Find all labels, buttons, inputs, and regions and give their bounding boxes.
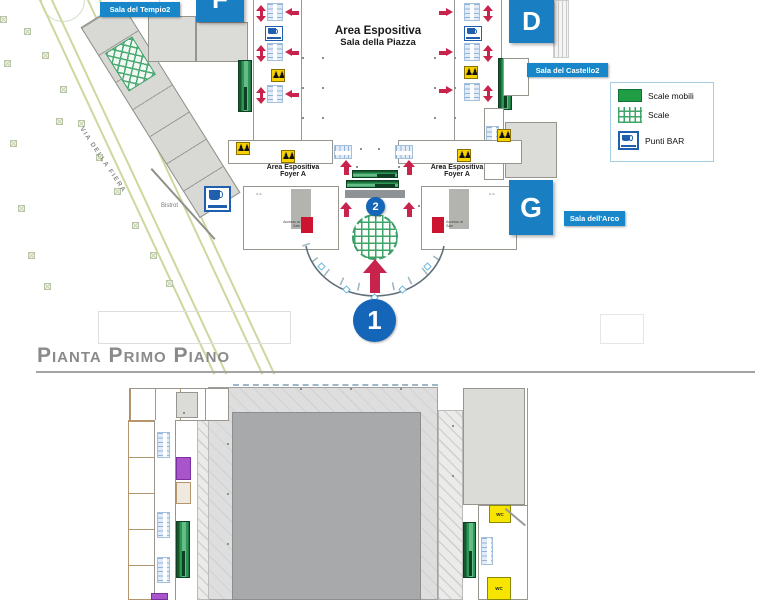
- tree-icon: [56, 118, 63, 125]
- tree-icon: [0, 16, 7, 23]
- bench-gates: [267, 85, 283, 103]
- bench-gates: [464, 83, 480, 101]
- tree-icon: [28, 252, 35, 259]
- arrow-left-icon: [285, 8, 299, 17]
- first-floor-plan: WC WC: [0, 380, 760, 600]
- bar-icon: [464, 26, 482, 41]
- foyer-label-right: Area Espositiva Foyer A: [425, 164, 489, 178]
- piazza-title: Area Espositiva Sala della Piazza: [320, 25, 436, 48]
- tree-icon: [18, 205, 25, 212]
- badge-sala-dellarco: Sala dell'Arco: [564, 211, 625, 226]
- foyer-label-left: Area Espositiva Foyer A: [261, 164, 325, 178]
- bench-gates: [157, 512, 170, 538]
- arrow-up-icon: [403, 160, 415, 175]
- escalator-icon: [463, 522, 476, 578]
- arrow-vertical-icon: [256, 87, 266, 104]
- building-block: [463, 388, 525, 505]
- building-block: [176, 482, 191, 504]
- bench-gates: [157, 557, 170, 583]
- bar-icon: [618, 131, 639, 150]
- arrow-left-icon: [285, 90, 299, 99]
- tree-icon: [10, 140, 17, 147]
- bench-gates: [157, 432, 170, 458]
- legend-label: Scale mobili: [648, 91, 694, 101]
- inner-hall: [232, 412, 421, 600]
- bench-gates: [267, 43, 283, 61]
- arrow-up-icon: [403, 202, 415, 217]
- section-heading: Pianta Primo Piano: [37, 344, 230, 368]
- tree-icon: [166, 280, 173, 287]
- escalator-icon: [352, 170, 398, 178]
- wall: [253, 0, 254, 142]
- arrow-up-icon: [340, 160, 352, 175]
- legend-label: Scale: [648, 110, 669, 120]
- hall-f-letter: F: [212, 0, 228, 15]
- escalator-icon: [238, 60, 252, 112]
- escalator-icon: [346, 180, 399, 188]
- pedestrians-icon: [464, 66, 478, 79]
- building-block: [196, 22, 248, 62]
- hatch-strip: [438, 410, 463, 600]
- escalator-swatch: [618, 89, 642, 102]
- tree-icon: [42, 52, 49, 59]
- arrow-right-icon: [439, 48, 453, 57]
- pedestrians-icon: [457, 149, 471, 162]
- bench-gates: [267, 3, 283, 21]
- arrow-vertical-icon: [256, 5, 266, 22]
- building-block: [176, 392, 198, 418]
- pedestrians-icon: [236, 142, 250, 155]
- legend-item-escalator: Scale mobili: [618, 89, 694, 102]
- hall-d-box: D: [509, 0, 554, 43]
- arrow-vertical-icon: [483, 5, 493, 22]
- access-label-right: Accesso ai Sale: [446, 220, 463, 228]
- tree-icon: [4, 60, 11, 67]
- hall-g-box: G: [509, 180, 553, 235]
- wall: [301, 0, 302, 142]
- entrance-arrow-icon: [363, 259, 387, 293]
- arrow-vertical-icon: [483, 45, 493, 62]
- stairs-swatch: [618, 107, 642, 123]
- access-door: [301, 217, 313, 233]
- hall-g-letter: G: [520, 192, 542, 224]
- arrow-left-icon: [285, 48, 299, 57]
- tree-icon: [24, 28, 31, 35]
- hall-f-box: F: [196, 0, 244, 22]
- tree-icon: [44, 283, 51, 290]
- bench-gates: [464, 43, 480, 61]
- bench-gates: [464, 3, 480, 21]
- faint-building-outline: [98, 311, 291, 344]
- tree-icon: [132, 222, 139, 229]
- badge-sala-del-castello2: Sala del Castello2: [527, 63, 608, 77]
- bench-gates: [481, 537, 493, 565]
- legend-item-stairs: Scale: [618, 107, 669, 123]
- pedestrians-icon: [271, 69, 285, 82]
- tree-icon: [60, 86, 67, 93]
- wc-room: WC: [489, 505, 511, 523]
- bar-icon: [204, 186, 231, 212]
- ground-floor-plan: VIA DELLA FIERA F Sala del Tempio2 Area …: [0, 0, 760, 345]
- floor-plan-page: VIA DELLA FIERA F Sala del Tempio2 Area …: [0, 0, 760, 600]
- hatch-strip: [197, 395, 209, 600]
- inner-marker-2: 2: [366, 197, 385, 216]
- column-dots: [0, 380, 2, 382]
- piazza-title-line1: Area Espositiva: [320, 25, 436, 37]
- access-label-left: Accesso ai Sale: [283, 220, 300, 228]
- legend: Scale mobili Scale Punti BAR: [610, 82, 714, 162]
- access-door: [432, 217, 444, 233]
- legend-item-bar: Punti BAR: [618, 131, 684, 150]
- building-block: [503, 58, 529, 96]
- building-block: [128, 420, 155, 600]
- building-block: [148, 16, 196, 62]
- wc-room: WC: [487, 577, 511, 600]
- building-hatch: [553, 0, 569, 58]
- escalator-icon: [176, 521, 190, 578]
- arrow-vertical-icon: [483, 85, 493, 102]
- dashed-top-edge: [233, 384, 438, 386]
- arrow-right-icon: [439, 8, 453, 17]
- arrow-vertical-icon: [256, 45, 266, 62]
- column-dots: [0, 0, 2, 2]
- bar-icon: [265, 26, 283, 41]
- heading-rule: [36, 371, 755, 373]
- bench-gates: [395, 145, 413, 159]
- hall-d-letter: D: [522, 6, 541, 37]
- purple-room: [176, 457, 191, 480]
- legend-label: Punti BAR: [645, 136, 684, 146]
- piazza-title-line2: Sala della Piazza: [320, 37, 436, 48]
- arrow-right-icon: [439, 86, 453, 95]
- tree-icon: [150, 252, 157, 259]
- bistrot-label: Bistrot: [161, 203, 178, 209]
- bench-gates: [334, 145, 352, 159]
- exit-label-right: u.s.: [489, 191, 495, 196]
- badge-sala-del-tempio2: Sala del Tempio2: [100, 2, 180, 17]
- arrow-up-icon: [340, 202, 352, 217]
- wall: [454, 0, 455, 142]
- wall: [527, 388, 528, 600]
- exit-label-left: u.s.: [256, 191, 262, 196]
- pedestrians-icon: [281, 150, 295, 163]
- entrance-marker-1: 1: [353, 299, 396, 342]
- pedestrians-icon: [497, 129, 511, 142]
- purple-room: [151, 593, 168, 600]
- faint-building-outline: [600, 314, 644, 344]
